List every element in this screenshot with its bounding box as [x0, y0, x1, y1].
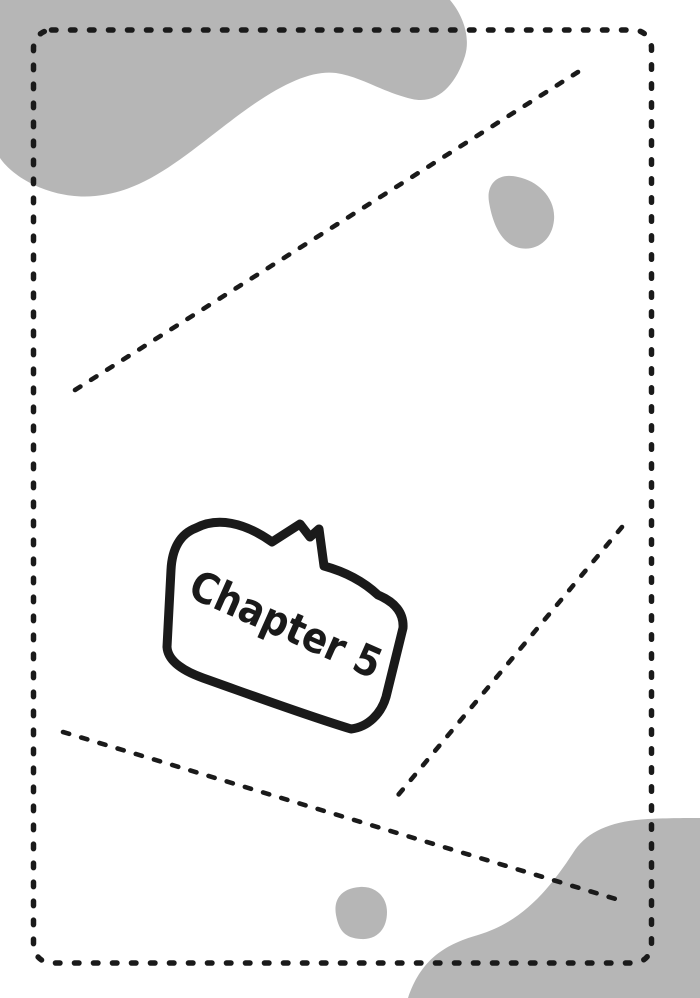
dashed-line-bottom: [63, 732, 619, 900]
chapter-divider-page: Chapter 5: [0, 0, 700, 998]
chapter-divider-art: Chapter 5: [0, 0, 700, 998]
blob-top-right-icon: [489, 176, 555, 249]
blob-bottom-right-icon: [408, 818, 700, 998]
blob-bottom-center-icon: [335, 887, 387, 939]
dashed-line-right: [394, 527, 622, 800]
speech-bubble: Chapter 5: [167, 522, 403, 729]
